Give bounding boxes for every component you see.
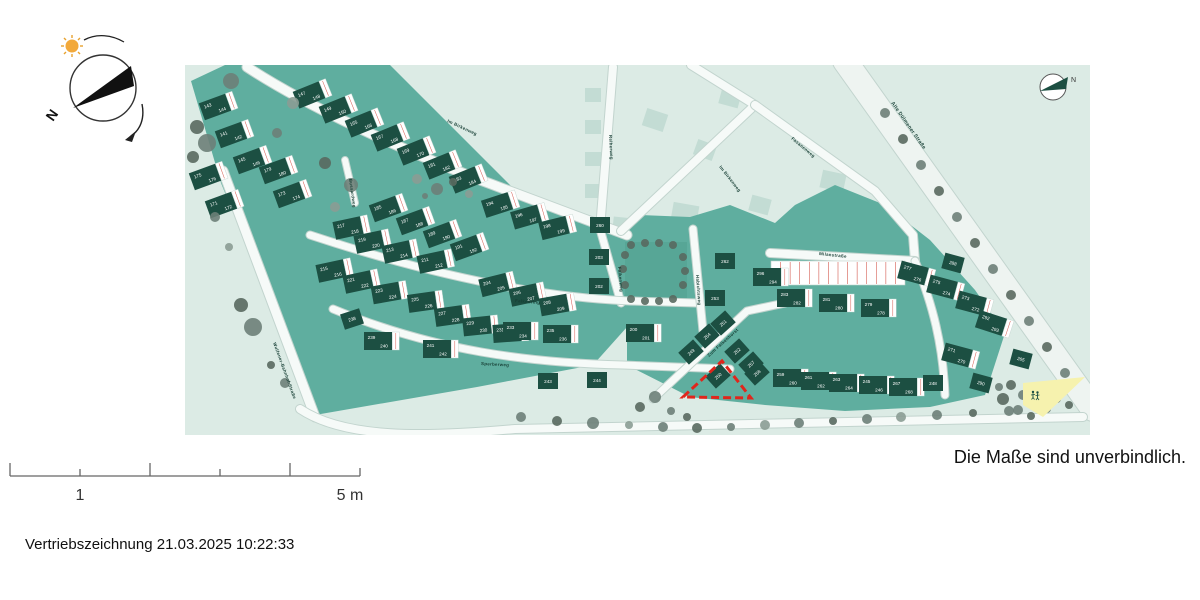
house-number: 253 <box>711 296 719 301</box>
tree <box>621 251 629 259</box>
house-279: 279278 <box>861 299 896 317</box>
house-number: 262 <box>721 259 729 264</box>
tree <box>287 97 299 109</box>
tree <box>187 151 199 163</box>
tree <box>1006 380 1016 390</box>
house-number: 268 <box>905 390 913 395</box>
tree <box>655 297 663 305</box>
tree <box>969 409 977 417</box>
house-203: 203 <box>589 249 609 265</box>
scale-label-5m: 5 m <box>337 487 364 504</box>
tree <box>916 160 926 170</box>
tree <box>896 412 906 422</box>
tree <box>272 128 282 138</box>
house-number: 201 <box>642 336 650 341</box>
house-233: 233234 <box>503 322 538 340</box>
compass-arc-top <box>84 36 124 42</box>
house-244: 244 <box>587 372 607 388</box>
tree <box>627 241 635 249</box>
house-number: 243 <box>544 379 552 384</box>
tree <box>970 238 980 248</box>
house-202: 202 <box>589 278 609 294</box>
tree <box>679 253 687 261</box>
tree <box>1060 368 1070 378</box>
house-number: 246 <box>875 388 883 393</box>
house-number: 264 <box>845 386 853 391</box>
compass-north-label: N <box>42 106 61 123</box>
house-241: 241242 <box>423 340 458 358</box>
house-267: 267268 <box>889 378 924 396</box>
tree <box>330 202 340 212</box>
tree <box>727 423 735 431</box>
house-number: 245 <box>863 379 871 384</box>
tree <box>225 243 233 251</box>
compass-arrow-curve <box>131 104 143 136</box>
house-number: 267 <box>893 381 901 386</box>
house-number: 244 <box>593 378 601 383</box>
house-number: 202 <box>595 284 603 289</box>
tree <box>667 407 675 415</box>
tree <box>641 239 649 247</box>
future-building <box>585 152 601 166</box>
scale-bar: 1 5 m <box>8 452 374 512</box>
house-262: 262 <box>715 253 735 269</box>
house-number: 242 <box>439 352 447 357</box>
drawing-title-timestamp: Vertriebszeichnung 21.03.2025 10:22:33 <box>25 536 294 553</box>
tree <box>244 318 262 336</box>
tree <box>681 267 689 275</box>
tree <box>862 414 872 424</box>
tree <box>635 402 645 412</box>
compass-arrow-head <box>125 131 136 142</box>
tree <box>683 413 691 421</box>
house-number: 200 <box>630 327 638 332</box>
house-253: 253 <box>705 290 725 306</box>
tree <box>641 297 649 305</box>
future-building <box>585 88 601 102</box>
tree <box>552 416 562 426</box>
house-number: 278 <box>877 311 885 316</box>
house-283: 283282 <box>777 289 812 307</box>
house-296: 296294 <box>753 268 788 286</box>
house-number: 279 <box>865 302 873 307</box>
tree <box>995 383 1003 391</box>
house-number: 281 <box>823 297 831 302</box>
tree <box>1065 401 1073 409</box>
house-number: 248 <box>929 381 937 386</box>
tree <box>190 120 204 134</box>
tree <box>934 186 944 196</box>
house-number: 262 <box>817 384 825 389</box>
house-number: 239 <box>368 335 376 340</box>
house-number: 234 <box>519 334 527 339</box>
house-number: 259 <box>777 372 785 377</box>
disclaimer-text: Die Maße sind unverbindlich. <box>954 447 1186 468</box>
future-building <box>585 120 601 134</box>
tree <box>760 420 770 430</box>
tree <box>1004 406 1014 416</box>
house-number: 233 <box>507 325 515 330</box>
tree <box>952 212 962 222</box>
park-square <box>625 242 687 300</box>
tree <box>234 298 248 312</box>
tree <box>449 178 457 186</box>
tree <box>422 193 428 199</box>
house-243: 243 <box>538 373 558 389</box>
tree <box>794 418 804 428</box>
tree <box>997 393 1009 405</box>
compass-rose: N <box>42 24 157 146</box>
house-number: 240 <box>380 344 388 349</box>
tree <box>1042 342 1052 352</box>
house-number: 283 <box>781 292 789 297</box>
tree <box>692 423 702 433</box>
tree <box>658 422 668 432</box>
house-number: 235 <box>547 328 555 333</box>
tree <box>1024 316 1034 326</box>
tree <box>587 417 599 429</box>
tree <box>1027 412 1035 420</box>
tree <box>210 212 220 222</box>
tree <box>223 73 239 89</box>
tree <box>829 417 837 425</box>
tree <box>655 239 663 247</box>
tree <box>898 134 908 144</box>
tree <box>319 157 331 169</box>
house-number: 296 <box>757 271 765 276</box>
house-number: 282 <box>793 301 801 306</box>
house-number: 280 <box>835 306 843 311</box>
house-number: 241 <box>427 343 435 348</box>
tree <box>932 410 942 420</box>
tree <box>880 108 890 118</box>
house-number: 260 <box>596 223 604 228</box>
house-260: 260 <box>590 217 610 233</box>
sun-icon <box>61 35 83 57</box>
house-235: 235236 <box>543 325 578 343</box>
house-number: 263 <box>833 377 841 382</box>
tree <box>267 361 275 369</box>
house-number: 260 <box>789 381 797 386</box>
tree <box>412 174 422 184</box>
house-number: 236 <box>559 337 567 342</box>
house-number: 294 <box>769 280 777 285</box>
tree <box>431 183 443 195</box>
house-200: 200201 <box>626 324 661 342</box>
tree <box>669 241 677 249</box>
house-number: 261 <box>805 375 813 380</box>
tree <box>669 295 677 303</box>
tree <box>198 134 216 152</box>
tree <box>625 421 633 429</box>
tree <box>1006 290 1016 300</box>
house-248: 248 <box>923 375 943 391</box>
house-number: 230 <box>479 327 488 333</box>
tree <box>679 281 687 289</box>
tree <box>988 264 998 274</box>
scale-label-1: 1 <box>76 487 85 504</box>
tree <box>627 295 635 303</box>
tree <box>465 190 473 198</box>
tree <box>649 391 661 403</box>
tree <box>516 412 526 422</box>
house-number: 229 <box>466 320 475 326</box>
map-north-label: N <box>1071 77 1076 84</box>
house-281: 281280 <box>819 294 854 312</box>
house-number: 203 <box>595 255 603 260</box>
house-239: 239240 <box>364 332 399 350</box>
site-plan-map: 1431441411421451461791801751761731741711… <box>185 65 1090 435</box>
tree <box>1013 405 1023 415</box>
